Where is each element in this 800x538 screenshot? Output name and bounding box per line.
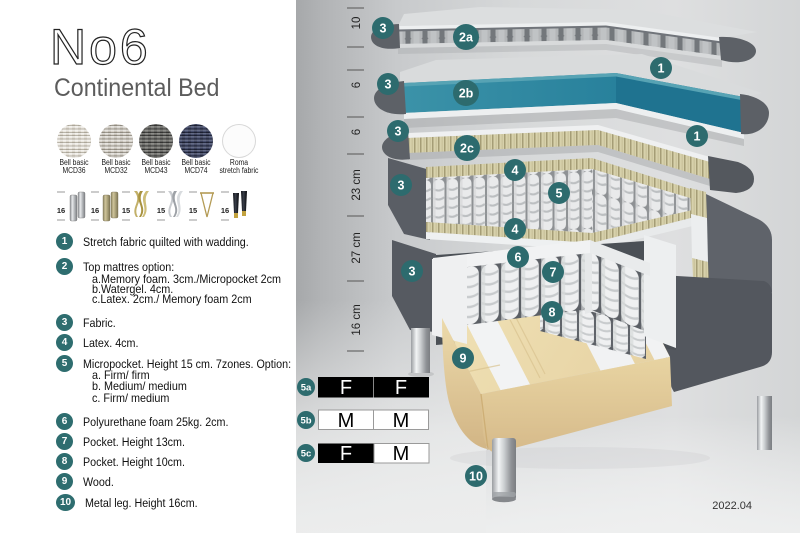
svg-text:4: 4	[512, 223, 519, 237]
svg-text:3: 3	[395, 125, 402, 139]
svg-text:23 cm: 23 cm	[351, 169, 363, 200]
svg-text:9: 9	[460, 352, 467, 366]
svg-text:2c: 2c	[460, 142, 474, 156]
svg-text:1: 1	[658, 62, 665, 76]
svg-text:16 cm: 16 cm	[351, 304, 363, 335]
svg-text:10: 10	[469, 470, 483, 484]
svg-text:6: 6	[351, 82, 363, 88]
svg-text:15: 15	[189, 206, 197, 215]
svg-text:2b: 2b	[459, 87, 474, 101]
svg-text:10: 10	[351, 17, 363, 30]
svg-text:5c: 5c	[301, 449, 312, 460]
svg-text:M: M	[393, 410, 410, 432]
svg-text:16: 16	[91, 206, 99, 215]
svg-text:M: M	[338, 410, 355, 432]
svg-text:F: F	[395, 377, 407, 399]
svg-text:5: 5	[556, 187, 563, 201]
svg-text:16: 16	[57, 206, 65, 215]
svg-text:2a: 2a	[459, 31, 474, 45]
svg-text:7: 7	[550, 266, 557, 280]
svg-text:5a: 5a	[301, 383, 312, 394]
svg-text:15: 15	[122, 206, 130, 215]
svg-text:M: M	[393, 443, 410, 465]
svg-text:1: 1	[694, 130, 701, 144]
svg-text:3: 3	[380, 22, 387, 36]
svg-text:F: F	[340, 443, 352, 465]
svg-text:16: 16	[221, 206, 229, 215]
svg-text:3: 3	[385, 78, 392, 92]
svg-text:27 cm: 27 cm	[351, 232, 363, 263]
svg-text:8: 8	[549, 306, 556, 320]
svg-text:F: F	[340, 377, 352, 399]
svg-text:15: 15	[157, 206, 165, 215]
svg-text:6: 6	[351, 129, 363, 135]
svg-text:5b: 5b	[300, 416, 311, 427]
svg-text:2022.04: 2022.04	[712, 500, 752, 512]
svg-text:3: 3	[409, 265, 416, 279]
svg-text:6: 6	[515, 251, 522, 265]
svg-text:4: 4	[512, 164, 519, 178]
svg-text:3: 3	[398, 179, 405, 193]
